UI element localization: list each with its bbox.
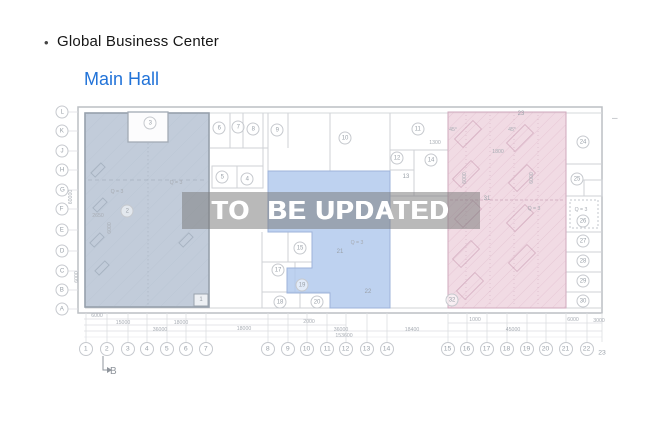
page-title: Global Business Center [57,33,219,50]
watermark-text: TO BE UPDATED [212,195,450,226]
room-3-notch [128,112,168,142]
main-hall-link[interactable]: Main Hall [84,69,159,90]
page: LKJHGFEDCBA12345678910111213141516171819… [0,0,660,440]
section-marker-label: B [110,366,117,377]
bullet-icon: • [44,35,49,50]
right-edge-dash: – [612,113,618,124]
watermark-banner: TO BE UPDATED [182,192,480,229]
